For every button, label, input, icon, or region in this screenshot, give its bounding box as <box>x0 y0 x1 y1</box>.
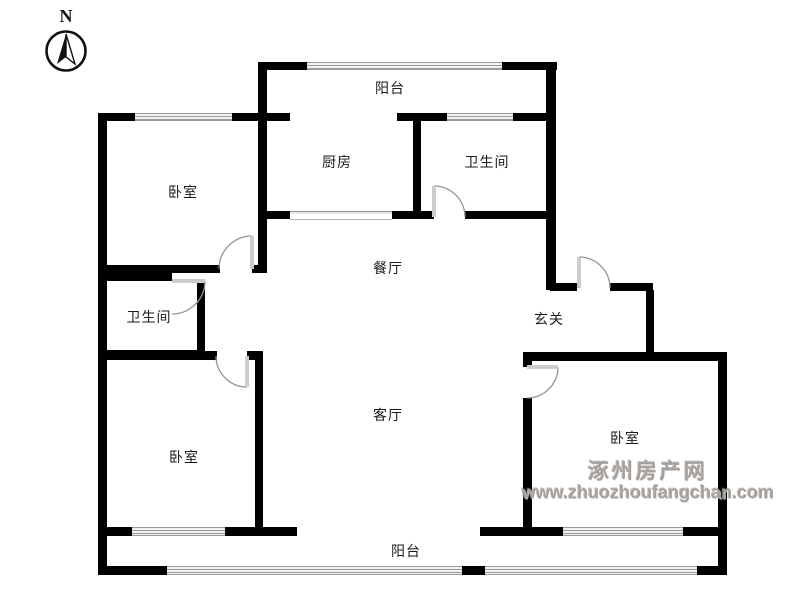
wall-segment <box>232 113 290 121</box>
wall-segment <box>98 350 205 358</box>
wall-segment <box>258 62 267 273</box>
wall-segment <box>546 62 556 290</box>
wall-segment <box>197 281 205 358</box>
wall-segment <box>610 283 653 291</box>
wall-segment <box>683 527 727 536</box>
wall-segment <box>98 273 172 281</box>
room-label-living-room: 客厅 <box>373 405 403 425</box>
wall-segment <box>465 211 551 219</box>
room-label-dining-room: 餐厅 <box>373 258 403 278</box>
wall-segment <box>462 566 485 575</box>
room-label-kitchen: 厨房 <box>322 152 352 172</box>
wall-segment <box>697 566 727 575</box>
wall-segment <box>247 351 263 360</box>
room-label-balcony-top: 阳台 <box>375 78 405 98</box>
window <box>485 566 697 575</box>
window <box>447 113 513 121</box>
room-label-balcony-bottom: 阳台 <box>391 541 421 561</box>
wall-segment <box>255 360 263 535</box>
window <box>167 566 462 575</box>
wall-segment <box>98 265 220 273</box>
wall-segment <box>392 211 434 219</box>
floorplan-canvas: N 阳台厨房卫生间卧室餐厅卫生间玄关客厅卧室卧室阳台 涿州房产网 www.zhu… <box>0 0 800 600</box>
wall-segment <box>523 352 727 361</box>
wall-segment <box>646 290 654 358</box>
wall-segment <box>98 527 132 536</box>
wall-segment <box>480 527 563 536</box>
wall-segment <box>550 283 577 291</box>
watermark-site-name: 涿州房产网 <box>522 462 774 484</box>
window <box>563 527 683 536</box>
wall-segment <box>513 113 556 121</box>
wall-segment <box>502 62 557 70</box>
wall-segment <box>413 121 421 218</box>
room-label-entrance-hall: 玄关 <box>534 309 564 329</box>
wall-segment <box>98 113 107 575</box>
wall-segment <box>252 265 266 273</box>
window <box>132 527 225 536</box>
floor-plan: 阳台厨房卫生间卧室餐厅卫生间玄关客厅卧室卧室阳台 <box>0 0 800 600</box>
room-label-bedroom-top-left: 卧室 <box>168 182 198 202</box>
wall-segment <box>100 566 167 575</box>
room-label-bedroom-bottom-right: 卧室 <box>610 428 640 448</box>
window <box>307 62 502 70</box>
watermark: 涿州房产网 www.zhuozhoufangchan.com <box>522 462 774 503</box>
wall-segment <box>258 211 290 219</box>
wall-segment <box>397 113 447 121</box>
window <box>135 113 232 121</box>
wall-segment <box>258 62 307 70</box>
room-label-bathroom-top: 卫生间 <box>465 152 510 172</box>
room-label-bedroom-bottom-left: 卧室 <box>169 447 199 467</box>
room-label-bathroom-left: 卫生间 <box>127 307 172 327</box>
watermark-site-url: www.zhuozhoufangchan.com <box>522 484 774 503</box>
wall-segment <box>225 527 297 536</box>
sliding-door <box>290 211 392 220</box>
wall-segment <box>98 113 135 121</box>
